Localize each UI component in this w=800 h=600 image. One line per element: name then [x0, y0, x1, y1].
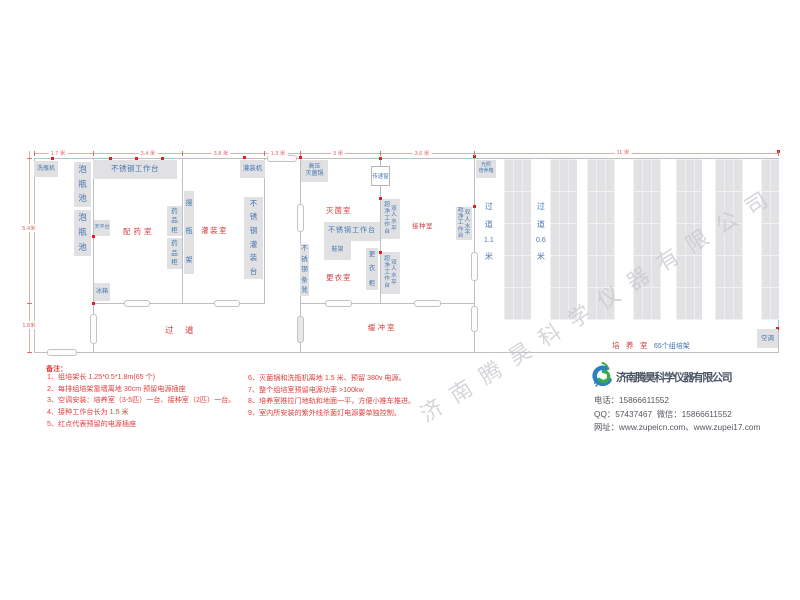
svg-text:TH: TH — [599, 374, 608, 381]
